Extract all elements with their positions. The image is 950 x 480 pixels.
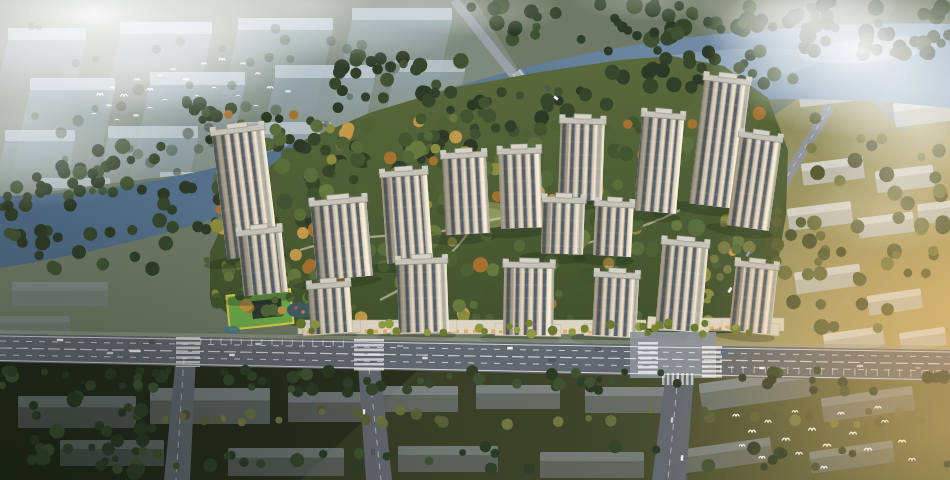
roof-penthouse xyxy=(394,166,413,172)
tree xyxy=(360,119,373,132)
tree xyxy=(275,114,284,123)
roof-parapet xyxy=(536,144,542,148)
tree xyxy=(333,102,344,113)
roof-parapet xyxy=(497,146,503,150)
tree xyxy=(361,92,370,101)
tree xyxy=(490,449,499,458)
tree xyxy=(604,47,613,56)
tree xyxy=(194,144,204,154)
tree xyxy=(643,78,659,94)
tree xyxy=(453,299,466,312)
tree xyxy=(304,168,319,183)
roof-parapet xyxy=(635,270,641,274)
tree xyxy=(403,151,415,163)
tree xyxy=(351,140,364,153)
tree xyxy=(553,416,564,427)
storefront-window xyxy=(563,330,567,334)
roof-parapet xyxy=(442,254,448,258)
tree xyxy=(546,368,558,380)
tree xyxy=(683,50,695,62)
tree xyxy=(342,122,355,135)
tree xyxy=(569,328,576,335)
tree xyxy=(612,179,623,190)
tree xyxy=(649,27,659,37)
tree xyxy=(473,373,486,386)
roof-penthouse xyxy=(574,114,592,120)
tree xyxy=(430,88,440,98)
tree xyxy=(436,117,448,129)
tree xyxy=(270,124,282,136)
tree xyxy=(463,265,472,274)
tree xyxy=(600,97,614,111)
tree xyxy=(526,329,536,339)
tree xyxy=(424,132,433,141)
tree xyxy=(623,119,633,129)
roof-parapet xyxy=(641,107,647,112)
tree xyxy=(639,323,646,330)
car xyxy=(548,358,555,361)
tree xyxy=(308,133,321,146)
tree xyxy=(275,158,291,174)
tree xyxy=(581,325,589,333)
tower-sunlit-side xyxy=(546,265,554,335)
tree xyxy=(496,87,506,97)
tree xyxy=(534,122,548,136)
roof-parapet xyxy=(276,223,282,228)
tree xyxy=(380,73,394,87)
tree xyxy=(446,373,452,379)
tree xyxy=(491,123,501,133)
tree xyxy=(505,120,517,132)
car xyxy=(507,346,513,349)
block-roof-light xyxy=(540,452,644,461)
roof-parapet xyxy=(379,169,385,173)
tree xyxy=(523,130,531,138)
podium-window xyxy=(588,331,592,334)
tree xyxy=(579,88,592,101)
storefront-window xyxy=(464,330,468,334)
tree xyxy=(506,323,512,329)
tree xyxy=(619,146,634,161)
tree xyxy=(666,77,681,92)
tree xyxy=(413,58,428,73)
car xyxy=(595,347,601,350)
tree xyxy=(486,263,499,276)
tree xyxy=(597,376,603,382)
tree xyxy=(530,30,540,40)
tree xyxy=(554,87,563,96)
tree xyxy=(467,99,478,110)
tree xyxy=(349,175,359,185)
tree xyxy=(645,330,652,337)
tree xyxy=(453,53,469,69)
tree xyxy=(605,65,620,80)
tree xyxy=(350,68,361,79)
tree xyxy=(655,63,670,78)
tree xyxy=(329,78,341,90)
roof-parapet xyxy=(361,193,367,198)
tree xyxy=(357,179,367,189)
roof-parapet xyxy=(395,256,401,260)
tree xyxy=(429,156,438,165)
tree xyxy=(297,227,309,239)
tree xyxy=(526,320,533,327)
roof-parapet xyxy=(580,195,586,199)
tree xyxy=(632,31,642,41)
tree xyxy=(548,326,558,336)
storefront-window xyxy=(491,330,495,334)
tree xyxy=(179,181,192,194)
podium-window xyxy=(499,330,503,333)
roof-parapet xyxy=(503,259,509,263)
tree xyxy=(584,377,595,388)
lowrise-block xyxy=(476,385,560,409)
tree xyxy=(608,440,621,453)
roof-parapet xyxy=(550,259,556,263)
cloud xyxy=(55,10,305,130)
roof-parapet xyxy=(308,197,314,202)
tree xyxy=(605,415,616,426)
tree xyxy=(470,301,478,309)
tree xyxy=(608,377,615,384)
tree xyxy=(173,168,181,176)
tree xyxy=(512,379,522,389)
tree xyxy=(444,86,457,99)
tree xyxy=(624,26,633,35)
roof-penthouse xyxy=(519,258,539,263)
tree xyxy=(478,97,489,108)
roof-parapet xyxy=(481,148,487,152)
roof-parapet xyxy=(541,193,547,197)
tree xyxy=(577,35,586,44)
aerial-rendering xyxy=(0,0,950,480)
tree xyxy=(449,131,462,144)
tree xyxy=(585,415,591,421)
tree xyxy=(366,159,374,167)
tree xyxy=(440,329,447,336)
tree xyxy=(540,94,555,109)
roof-parapet xyxy=(594,268,600,272)
roof-parapet xyxy=(600,116,606,120)
tree xyxy=(513,240,525,252)
tree xyxy=(502,419,513,430)
roof-parapet xyxy=(440,150,446,154)
tree xyxy=(553,378,566,391)
tree xyxy=(446,106,454,114)
tree xyxy=(293,139,306,152)
tree xyxy=(485,286,496,297)
tree xyxy=(470,128,481,139)
tree xyxy=(670,26,684,40)
tree xyxy=(493,375,503,385)
tree xyxy=(347,93,354,100)
tree xyxy=(277,194,293,210)
tree xyxy=(571,368,581,378)
tree xyxy=(480,441,492,453)
tree xyxy=(618,73,629,84)
tree xyxy=(664,318,672,326)
tree xyxy=(310,120,323,133)
tree xyxy=(320,145,331,156)
tree xyxy=(459,449,466,456)
tree xyxy=(424,329,431,336)
tree xyxy=(522,377,530,385)
roof-penthouse xyxy=(609,268,627,274)
tree xyxy=(482,109,496,123)
roof-parapet xyxy=(258,121,264,126)
tree xyxy=(449,114,457,122)
roof-parapet xyxy=(777,133,783,138)
tree xyxy=(398,132,412,146)
roof-penthouse xyxy=(511,144,528,150)
tree xyxy=(384,152,397,165)
tree xyxy=(378,92,389,103)
tree xyxy=(653,46,662,55)
tree xyxy=(473,257,488,272)
tree xyxy=(289,110,298,119)
roof-parapet xyxy=(559,114,565,118)
tree xyxy=(326,124,335,133)
tree xyxy=(573,293,582,302)
roof-penthouse xyxy=(411,254,431,260)
roof-penthouse xyxy=(455,148,473,154)
tree xyxy=(555,290,563,298)
tree xyxy=(550,121,559,130)
tree xyxy=(460,110,474,124)
roof-penthouse xyxy=(556,193,573,199)
tree xyxy=(327,155,337,165)
tree xyxy=(524,463,535,474)
tree xyxy=(336,136,350,150)
tree xyxy=(416,113,427,124)
tree xyxy=(606,320,615,329)
tree xyxy=(655,321,662,328)
tree xyxy=(645,242,661,258)
tree xyxy=(481,328,488,335)
tree xyxy=(485,463,497,475)
roof-parapet xyxy=(661,235,667,240)
tree xyxy=(514,327,520,333)
tree xyxy=(692,74,703,85)
roof-penthouse xyxy=(607,197,622,203)
rendering-canvas xyxy=(0,0,950,480)
roof-parapet xyxy=(594,197,600,201)
tree xyxy=(350,152,366,168)
tree xyxy=(516,92,524,100)
tree xyxy=(335,159,351,175)
tree xyxy=(294,209,306,221)
lowrise-block xyxy=(540,452,644,478)
tree xyxy=(621,369,628,376)
tree xyxy=(430,144,440,154)
roof-parapet xyxy=(422,166,428,170)
